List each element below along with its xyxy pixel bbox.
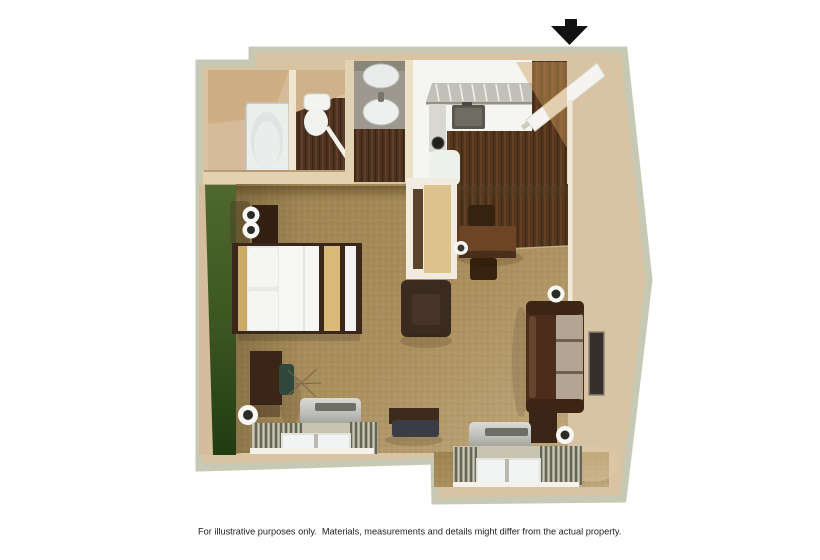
svg-text:For illustrative purposes only: For illustrative purposes only. Material… bbox=[198, 527, 621, 537]
